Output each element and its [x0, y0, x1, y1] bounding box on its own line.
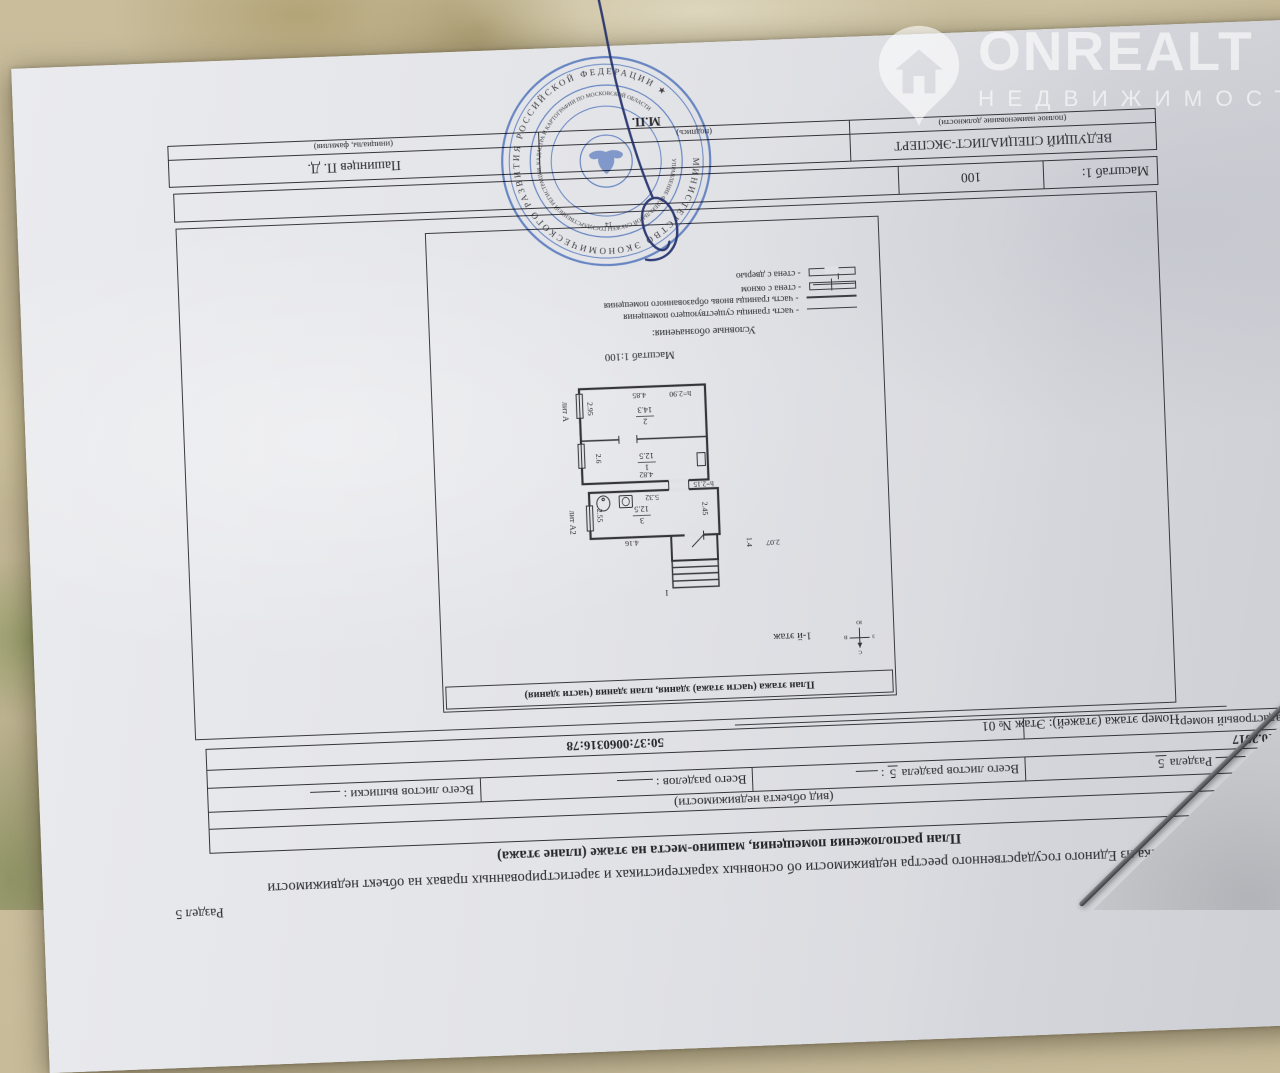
compass-south: Ю: [856, 619, 862, 625]
compass-icon: [849, 627, 870, 648]
scale-label-cell: Масштаб 1:: [1043, 156, 1158, 188]
new-boundary-line-icon: [807, 295, 857, 299]
lit-a2-label: лит А2: [568, 510, 578, 534]
compass-west: З: [872, 633, 875, 639]
dim-room3-left: 2.45: [700, 502, 710, 516]
colon: :: [881, 767, 885, 782]
room1-area: 12.5: [639, 451, 654, 461]
dim-room3-bottom: 5.32: [645, 493, 659, 503]
compass-east: В: [843, 634, 847, 640]
section-number: 5: [1156, 756, 1167, 772]
dim-room2-height: h=2.90: [669, 389, 691, 399]
stamp-number: 14: [604, 220, 612, 228]
dim-room1-side: 2.6: [594, 454, 603, 464]
egrn-extract-document: Раздел 5 Выписка из Единого государствен…: [11, 16, 1280, 1073]
room-divider-wall: [581, 436, 707, 441]
dim-room1-width: 4.82: [639, 470, 653, 480]
stair-roman-label: I: [665, 588, 668, 597]
blank-underline: [1215, 756, 1245, 769]
plan-frame: План этажа (части этажа) здания, план зд…: [175, 191, 1176, 740]
extract-sheets-label: Всего листов выписки :: [343, 783, 474, 803]
dim-room3-top: 4.16: [625, 539, 639, 549]
room3-area: 12.5: [634, 504, 649, 514]
room3-number: 3: [640, 516, 645, 525]
sheet-label: Лист №: [1249, 752, 1280, 769]
wall-with-door-icon: [808, 267, 855, 277]
dim-porch-width: 2.07: [766, 538, 780, 548]
dim-room3-height: h=2.15: [693, 479, 714, 488]
compass-north: С: [858, 649, 862, 655]
lit-a-label: лит А: [560, 402, 570, 422]
room2-number: 2: [643, 417, 648, 426]
blank-underline: [856, 771, 878, 784]
stove-icon: [697, 453, 705, 466]
existing-boundary-line-icon: [807, 307, 857, 310]
dim-porch-depth: 1.4: [745, 537, 754, 547]
photo-of-document: { "watermark": { "brand": "ONREALT", "ta…: [0, 0, 1280, 910]
porch-outline: [671, 534, 718, 561]
stamp-emblem: [589, 150, 624, 175]
blank-underline: [617, 779, 653, 792]
dim-room3-right: 2.55: [595, 509, 605, 523]
sections-total-label: Всего разделов :: [656, 773, 747, 791]
dim-room2-side: 2.95: [585, 402, 595, 416]
stairs: [672, 559, 719, 588]
scale-value-cell: 100: [898, 161, 1044, 195]
wall-with-window-icon: [809, 281, 856, 291]
official-round-stamp: МИНИСТЕРСТВО ЭКОНОМИЧЕСКОГО РАЗВИТИЯ РОС…: [493, 48, 719, 274]
room-labels: 1 12.5 2 14.3 3 12.5: [630, 405, 656, 525]
plan-inner-frame: План этажа (части этажа) здания, план зд…: [425, 216, 897, 713]
sheets-total-number: 5: [888, 766, 899, 782]
document-sheet: Раздел 5 Выписка из Единого государствен…: [11, 16, 1280, 1073]
sheets-total-label: Всего листов раздела: [901, 762, 1019, 782]
section-label: Раздел 5: [175, 904, 224, 922]
sheet-of-label: Раздела: [1170, 755, 1213, 772]
room2-area: 14.3: [637, 405, 652, 415]
toilet-icon: [619, 495, 632, 507]
dim-room2-width: 4.85: [632, 391, 646, 401]
blank-underline: [310, 791, 340, 804]
